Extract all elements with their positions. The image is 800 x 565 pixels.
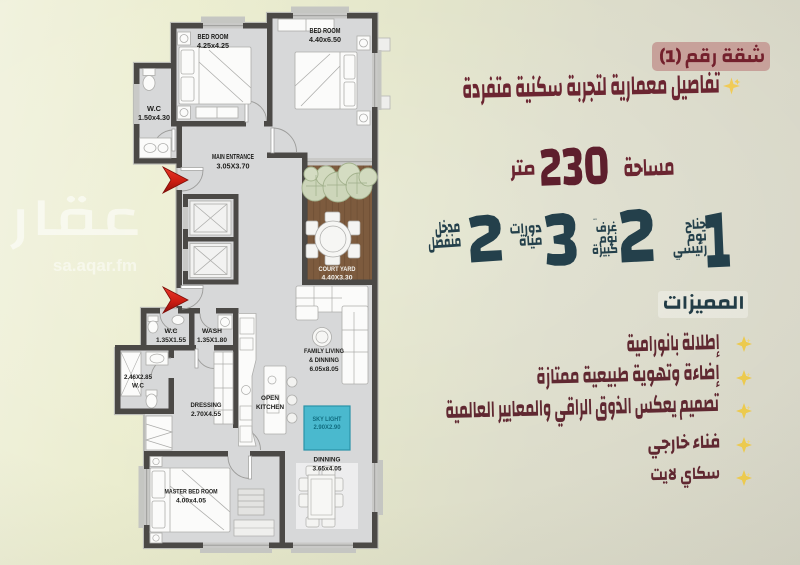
svg-text:6.05x8.05: 6.05x8.05 bbox=[310, 366, 339, 373]
svg-text:OPEN: OPEN bbox=[261, 395, 279, 402]
svg-text:BED ROOM: BED ROOM bbox=[310, 26, 341, 35]
svg-text:BED ROOM: BED ROOM bbox=[198, 32, 229, 41]
svg-text:W.C: W.C bbox=[147, 104, 161, 113]
svg-text:W.C: W.C bbox=[165, 328, 178, 335]
svg-text:sa.aqar.fm: sa.aqar.fm bbox=[53, 256, 137, 275]
svg-text:1.35X1.80: 1.35X1.80 bbox=[197, 337, 227, 344]
svg-text:KITCHEN: KITCHEN bbox=[256, 404, 284, 411]
svg-text:3.65x4.05: 3.65x4.05 bbox=[313, 466, 342, 473]
svg-text:4.40x6.50: 4.40x6.50 bbox=[309, 35, 341, 44]
svg-text:4.40X3.30: 4.40X3.30 bbox=[322, 275, 353, 282]
svg-text:MAIN ENTRANCE: MAIN ENTRANCE bbox=[212, 152, 254, 161]
svg-text:FAMILY LIVING: FAMILY LIVING bbox=[304, 348, 344, 355]
svg-text:& DINNING: & DINNING bbox=[309, 357, 339, 364]
svg-text:2.70X4.55: 2.70X4.55 bbox=[191, 411, 221, 418]
svg-text:2.46X2.85: 2.46X2.85 bbox=[124, 374, 152, 381]
svg-text:MASTER BED ROOM: MASTER BED ROOM bbox=[165, 489, 218, 496]
svg-text:4.25x4.25: 4.25x4.25 bbox=[197, 41, 229, 50]
svg-text:2.90X2.90: 2.90X2.90 bbox=[314, 424, 342, 431]
svg-text:DRESSING: DRESSING bbox=[191, 402, 222, 409]
svg-text:DINNING: DINNING bbox=[314, 457, 341, 464]
svg-text:W.C: W.C bbox=[132, 383, 144, 390]
svg-text:1.50x4.30: 1.50x4.30 bbox=[138, 113, 170, 122]
svg-text:3.05X3.70: 3.05X3.70 bbox=[217, 162, 250, 171]
svg-text:1.35X1.55: 1.35X1.55 bbox=[156, 337, 186, 344]
svg-text:COURT YARD: COURT YARD bbox=[319, 266, 356, 273]
svg-text:WASH: WASH bbox=[202, 328, 222, 335]
svg-text:SKY LIGHT: SKY LIGHT bbox=[313, 416, 342, 423]
svg-text:4.00x4.05: 4.00x4.05 bbox=[176, 498, 206, 505]
